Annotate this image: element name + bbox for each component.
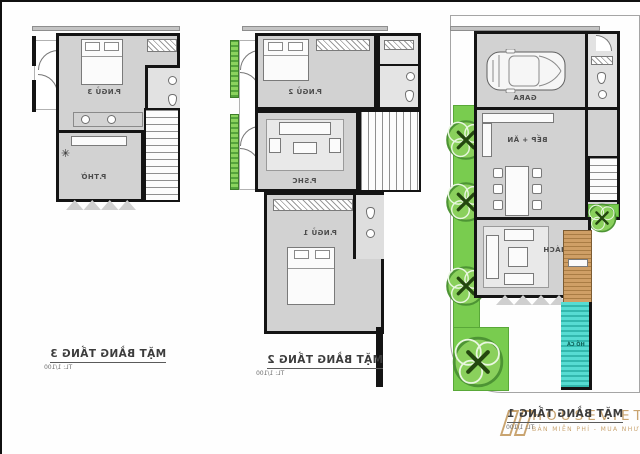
sofa-set-icon — [483, 226, 549, 288]
room-wc — [377, 33, 421, 110]
sofa-set-icon — [266, 119, 344, 171]
floorplan-2: P.NGỦ 2 P.SHC P.NGỦ 1 — [228, 24, 424, 394]
tree-icon — [450, 334, 506, 390]
room-label: P.SHC — [292, 177, 317, 185]
bed-icon — [263, 39, 309, 81]
altar-table-icon — [71, 136, 127, 146]
car-icon — [485, 49, 567, 93]
caption-title: MẶT BẰNG TẦNG 2 — [267, 354, 383, 369]
plan-caption: MẶT BẰNG TẦNG 1 TL: 1/100 — [500, 402, 630, 431]
plan-caption: MẶT BẰNG TẦNG 2 TL: 1/100 — [250, 348, 400, 377]
floorplan-sheet: P.NGỦ 3 ✳ P.THỜ MẶT BẰNG TẦNG 3 TL — [0, 0, 640, 454]
floorplan-1: GARA BẾP + ĂN — [448, 12, 640, 454]
terrace — [34, 198, 144, 294]
toilet-icon — [405, 90, 414, 102]
wardrobe-icon — [316, 39, 370, 51]
fish-pond: HỒ CÁ — [561, 302, 592, 390]
floorplan-3: P.NGỦ 3 ✳ P.THỜ MẶT BẰNG TẦNG 3 TL — [30, 24, 200, 389]
kitchen-counter-icon — [482, 123, 492, 157]
room-label: GARA — [513, 94, 537, 102]
wood-deck — [563, 230, 592, 306]
wall — [32, 80, 36, 112]
ceiling-fan-icon: ✳ — [61, 147, 70, 160]
pond-label: HỒ CÁ — [567, 342, 585, 348]
wardrobe-icon — [384, 40, 414, 50]
room-label: P.THỜ — [81, 173, 106, 181]
kitchen-counter-icon — [482, 113, 554, 123]
bed-icon — [81, 39, 123, 85]
bed-icon — [287, 247, 335, 305]
dining-table-icon — [505, 166, 529, 216]
room-bedroom2: P.NGỦ 2 — [255, 33, 377, 110]
door-arc-icon — [596, 35, 612, 51]
room-bedroom3: P.NGỦ 3 — [56, 33, 180, 111]
wardrobe-icon — [147, 39, 177, 52]
room-label: P.NGỦ 3 — [87, 88, 121, 96]
room-worship: ✳ P.THỜ — [56, 130, 144, 202]
stairs — [588, 156, 619, 202]
room-wc — [145, 65, 180, 111]
sink-icon — [366, 229, 375, 238]
room-bath — [356, 195, 384, 259]
caption-title: MẶT BẰNG TẦNG 3 — [50, 348, 166, 363]
planter — [230, 40, 239, 98]
wall — [32, 36, 36, 66]
room-label: BẾP + ĂN — [507, 136, 547, 144]
caption-scale: TL: 1/100 — [38, 364, 178, 371]
cabinet-icon — [591, 56, 613, 65]
stairs — [359, 110, 421, 192]
roof-band — [242, 26, 388, 31]
room-label: P.NGỦ 2 — [288, 88, 322, 96]
caption-scale: TL: 1/100 — [500, 424, 630, 431]
sink-icon — [168, 76, 177, 85]
caption-title: MẶT BẰNG TẦNG 1 — [507, 408, 623, 423]
room-entry-wc — [588, 34, 617, 107]
deck-label-box — [568, 259, 588, 267]
planter — [230, 114, 239, 190]
stairs — [144, 108, 180, 202]
toilet-icon — [366, 207, 375, 219]
plan-caption: MẶT BẰNG TẦNG 3 TL: 1/100 — [38, 342, 178, 371]
room-family: P.SHC — [255, 110, 359, 192]
sink-icon — [406, 72, 415, 81]
roof-band — [32, 26, 180, 31]
toilet-icon — [168, 94, 177, 106]
sink-icon — [598, 90, 607, 99]
room-bedroom1: P.NGỦ 1 — [264, 192, 384, 334]
toilet-icon — [597, 72, 606, 84]
room-garage: GARA — [474, 31, 620, 110]
wardrobe-icon — [273, 199, 353, 211]
caption-scale: TL: 1/100 — [250, 370, 400, 377]
room-label: P.NGỦ 1 — [303, 229, 337, 237]
